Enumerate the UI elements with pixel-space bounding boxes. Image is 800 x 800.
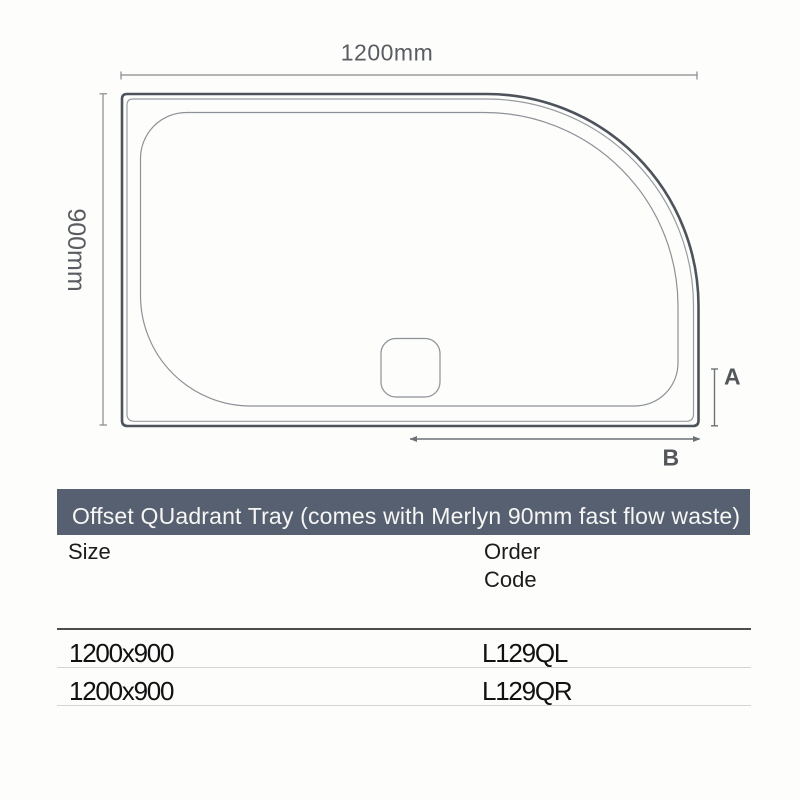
svg-text:A: A <box>724 364 741 390</box>
svg-text:1200mm: 1200mm <box>341 40 433 66</box>
svg-text:B: B <box>663 445 680 471</box>
svg-text:900mm: 900mm <box>62 208 90 291</box>
